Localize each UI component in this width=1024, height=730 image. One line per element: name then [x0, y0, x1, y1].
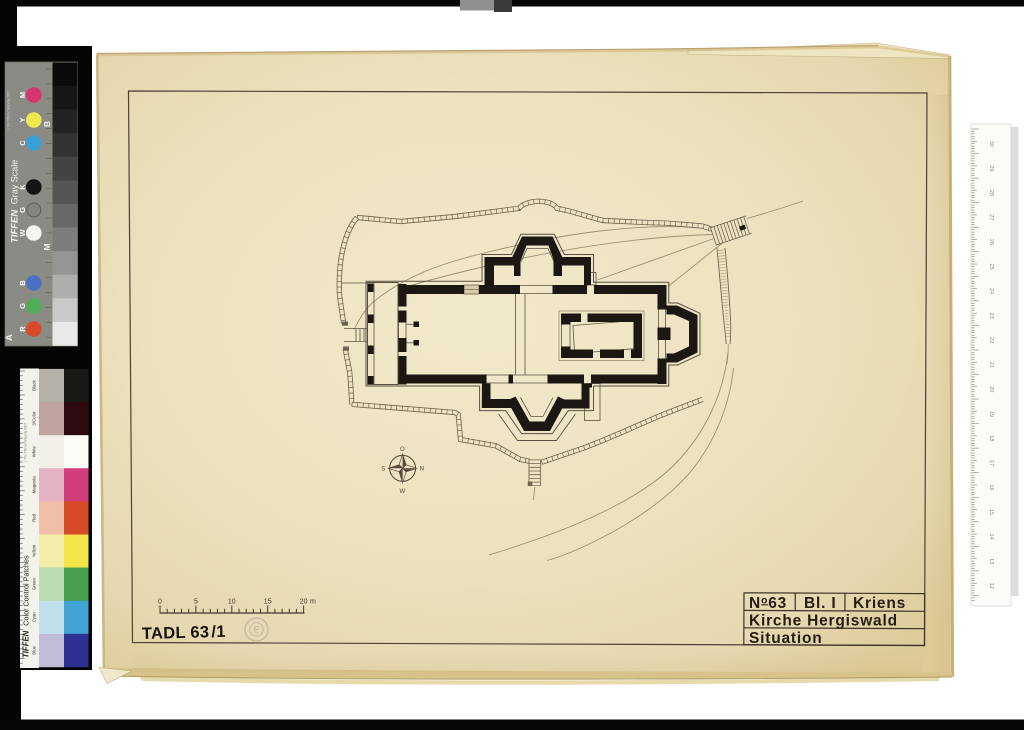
svg-text:Green: Green — [31, 578, 36, 591]
svg-text:W: W — [399, 489, 405, 495]
svg-text:19: 19 — [988, 411, 994, 417]
svg-text:18: 18 — [988, 435, 994, 441]
svg-text:16: 16 — [988, 484, 994, 490]
svg-text:Black: Black — [31, 379, 36, 391]
svg-text:TIFFEN Gray Scale: TIFFEN Gray Scale — [10, 160, 21, 243]
svg-text:20: 20 — [988, 386, 994, 392]
svg-text:M: M — [42, 243, 52, 250]
svg-text:c The Tiffen Company 2007: c The Tiffen Company 2007 — [7, 91, 11, 130]
svg-text:B: B — [42, 121, 52, 127]
svg-text:3/Color: 3/Color — [31, 411, 36, 426]
svg-text:N: N — [420, 467, 424, 473]
svg-text:29: 29 — [988, 165, 994, 171]
svg-text:24: 24 — [988, 288, 994, 294]
svg-text:Magenta: Magenta — [31, 476, 36, 494]
svg-text:Situation: Situation — [749, 630, 823, 647]
svg-text:White: White — [31, 446, 36, 458]
svg-text:25: 25 — [988, 263, 994, 269]
svg-text:TADL 63/1: TADL 63/1 — [142, 623, 226, 643]
svg-text:A: A — [4, 334, 15, 341]
svg-text:26: 26 — [988, 239, 994, 245]
svg-text:15: 15 — [988, 509, 994, 515]
svg-text:No63: No63 — [749, 594, 787, 612]
svg-text:21: 21 — [988, 362, 994, 368]
svg-text:m: m — [310, 599, 316, 606]
svg-text:C: C — [18, 140, 27, 146]
svg-text:M: M — [18, 92, 27, 98]
svg-text:12: 12 — [988, 583, 994, 589]
svg-text:Yellow: Yellow — [31, 544, 36, 557]
svg-text:22: 22 — [988, 337, 994, 343]
svg-text:28: 28 — [988, 190, 994, 196]
svg-text:27: 27 — [988, 214, 994, 220]
svg-text:G: G — [18, 303, 27, 309]
svg-text:O: O — [400, 447, 405, 453]
svg-text:Blue: Blue — [31, 645, 36, 654]
svg-text:30: 30 — [988, 141, 994, 147]
svg-text:c The Tiffen Company 2007: c The Tiffen Company 2007 — [24, 423, 28, 462]
svg-text:R: R — [18, 326, 27, 332]
svg-text:20: 20 — [300, 599, 308, 606]
svg-text:10: 10 — [228, 599, 236, 606]
svg-text:TIFFEN Color Control Patches: TIFFEN Color Control Patches — [22, 555, 31, 658]
svg-text:13: 13 — [988, 558, 994, 564]
svg-text:Red: Red — [31, 513, 36, 522]
svg-text:15: 15 — [264, 599, 272, 606]
svg-text:0: 0 — [158, 599, 162, 606]
svg-text:Cyan: Cyan — [31, 612, 36, 623]
svg-text:14: 14 — [988, 533, 994, 539]
svg-text:B: B — [18, 280, 27, 286]
svg-text:23: 23 — [988, 312, 994, 318]
svg-text:5: 5 — [194, 599, 198, 606]
svg-text:Kriens: Kriens — [853, 595, 906, 612]
svg-text:Kirche Hergiswald: Kirche Hergiswald — [749, 613, 898, 630]
svg-text:17: 17 — [988, 460, 994, 466]
svg-text:E: E — [254, 626, 259, 635]
svg-text:Bl. I: Bl. I — [804, 595, 836, 612]
svg-text:S: S — [381, 467, 385, 473]
svg-text:Y: Y — [18, 117, 27, 122]
